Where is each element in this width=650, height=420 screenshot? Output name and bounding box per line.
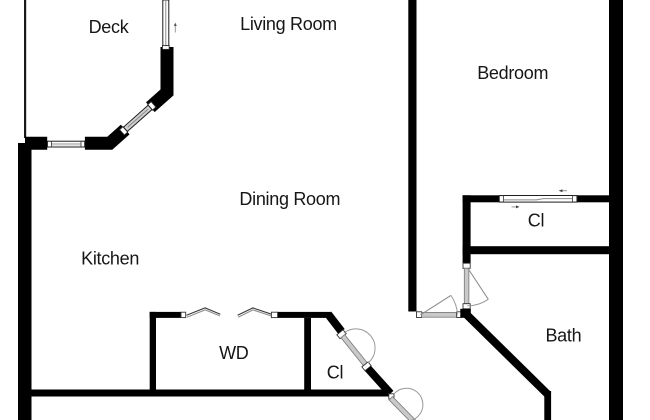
svg-text:Bath: Bath — [545, 325, 581, 345]
svg-text:Dining Room: Dining Room — [239, 189, 340, 209]
svg-text:Deck: Deck — [89, 17, 130, 37]
svg-text:Cl: Cl — [528, 211, 544, 231]
svg-text:WD: WD — [219, 343, 249, 363]
svg-text:Cl: Cl — [327, 363, 343, 383]
svg-text:Kitchen: Kitchen — [81, 249, 139, 269]
svg-text:Bedroom: Bedroom — [477, 63, 548, 83]
svg-text:Living Room: Living Room — [240, 14, 337, 34]
